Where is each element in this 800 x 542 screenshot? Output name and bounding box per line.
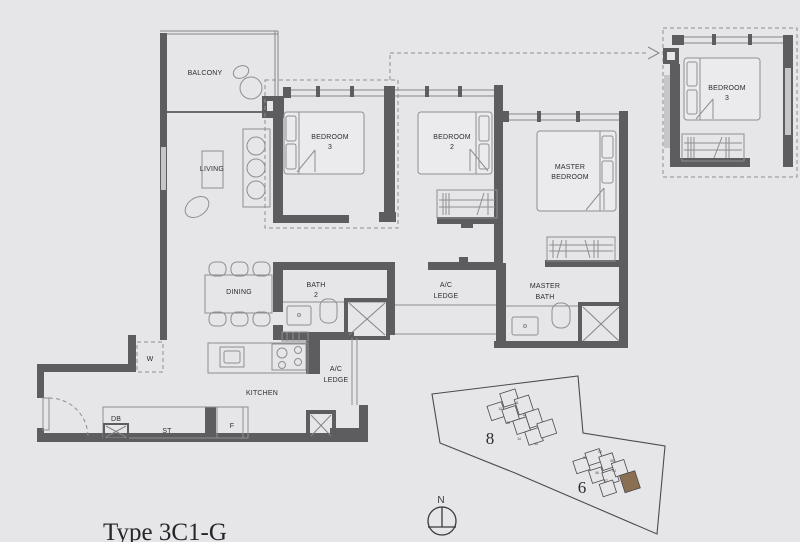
page-title: Type 3C1-G <box>103 519 227 542</box>
inset-bedroom3-label-1: BEDROOM <box>708 85 746 92</box>
unit-label: 14 <box>517 437 521 441</box>
north-label: N <box>437 495 444 506</box>
unit-label: 15 <box>534 442 538 446</box>
master-bath-label-1: MASTER <box>530 283 560 290</box>
unit-label: 07 <box>604 479 608 483</box>
kitchen-label: KITCHEN <box>246 390 278 397</box>
living-label: LIVING <box>200 166 224 173</box>
ac-ledge2-label-2: LEDGE <box>324 377 349 384</box>
bedroom2-label-2: 2 <box>450 144 454 151</box>
master-bedroom-label-1: MASTER <box>555 164 585 171</box>
bath2-label-1: BATH <box>307 282 326 289</box>
bedroom3-label-1: BEDROOM <box>311 134 349 141</box>
unit-label: 11 <box>515 401 519 405</box>
ac-ledge2-label-1: A/C <box>330 366 342 373</box>
balcony-label: BALCONY <box>188 70 223 77</box>
inset-bedroom3-label-2: 3 <box>725 95 729 102</box>
unit-label: 06 <box>595 471 599 475</box>
bath2-label-2: 2 <box>314 292 318 299</box>
block-6-label: 6 <box>578 478 587 497</box>
master-bedroom-label-2: BEDROOM <box>551 174 589 181</box>
washer-label: W <box>147 356 154 363</box>
unit-label: 12 <box>522 413 526 417</box>
bed <box>418 112 492 174</box>
master-bath-label-2: BATH <box>536 294 555 301</box>
block-8-label: 8 <box>486 429 495 448</box>
dining-label: DINING <box>226 289 252 296</box>
unit-label: 01 <box>583 456 587 460</box>
store-label: ST <box>162 428 172 435</box>
ac-ledge-label-2: LEDGE <box>434 293 459 300</box>
living-window <box>161 147 166 190</box>
bedroom-3: BEDROOM 3 <box>284 112 364 174</box>
bedroom3-label-2: 3 <box>328 144 332 151</box>
fridge-label: F <box>230 423 234 430</box>
bedroom2-label-1: BEDROOM <box>433 134 471 141</box>
unit-label: 13 <box>506 421 510 425</box>
unit-label: 05 <box>610 459 614 463</box>
unit-label: 04 <box>612 469 616 473</box>
ac-ledge-label-1: A/C <box>440 282 452 289</box>
db-label: DB <box>111 416 121 423</box>
unit-label: 10 <box>498 407 502 411</box>
floor-plan-canvas: BALCONY <box>0 0 800 542</box>
unit-label: 02 <box>598 450 602 454</box>
